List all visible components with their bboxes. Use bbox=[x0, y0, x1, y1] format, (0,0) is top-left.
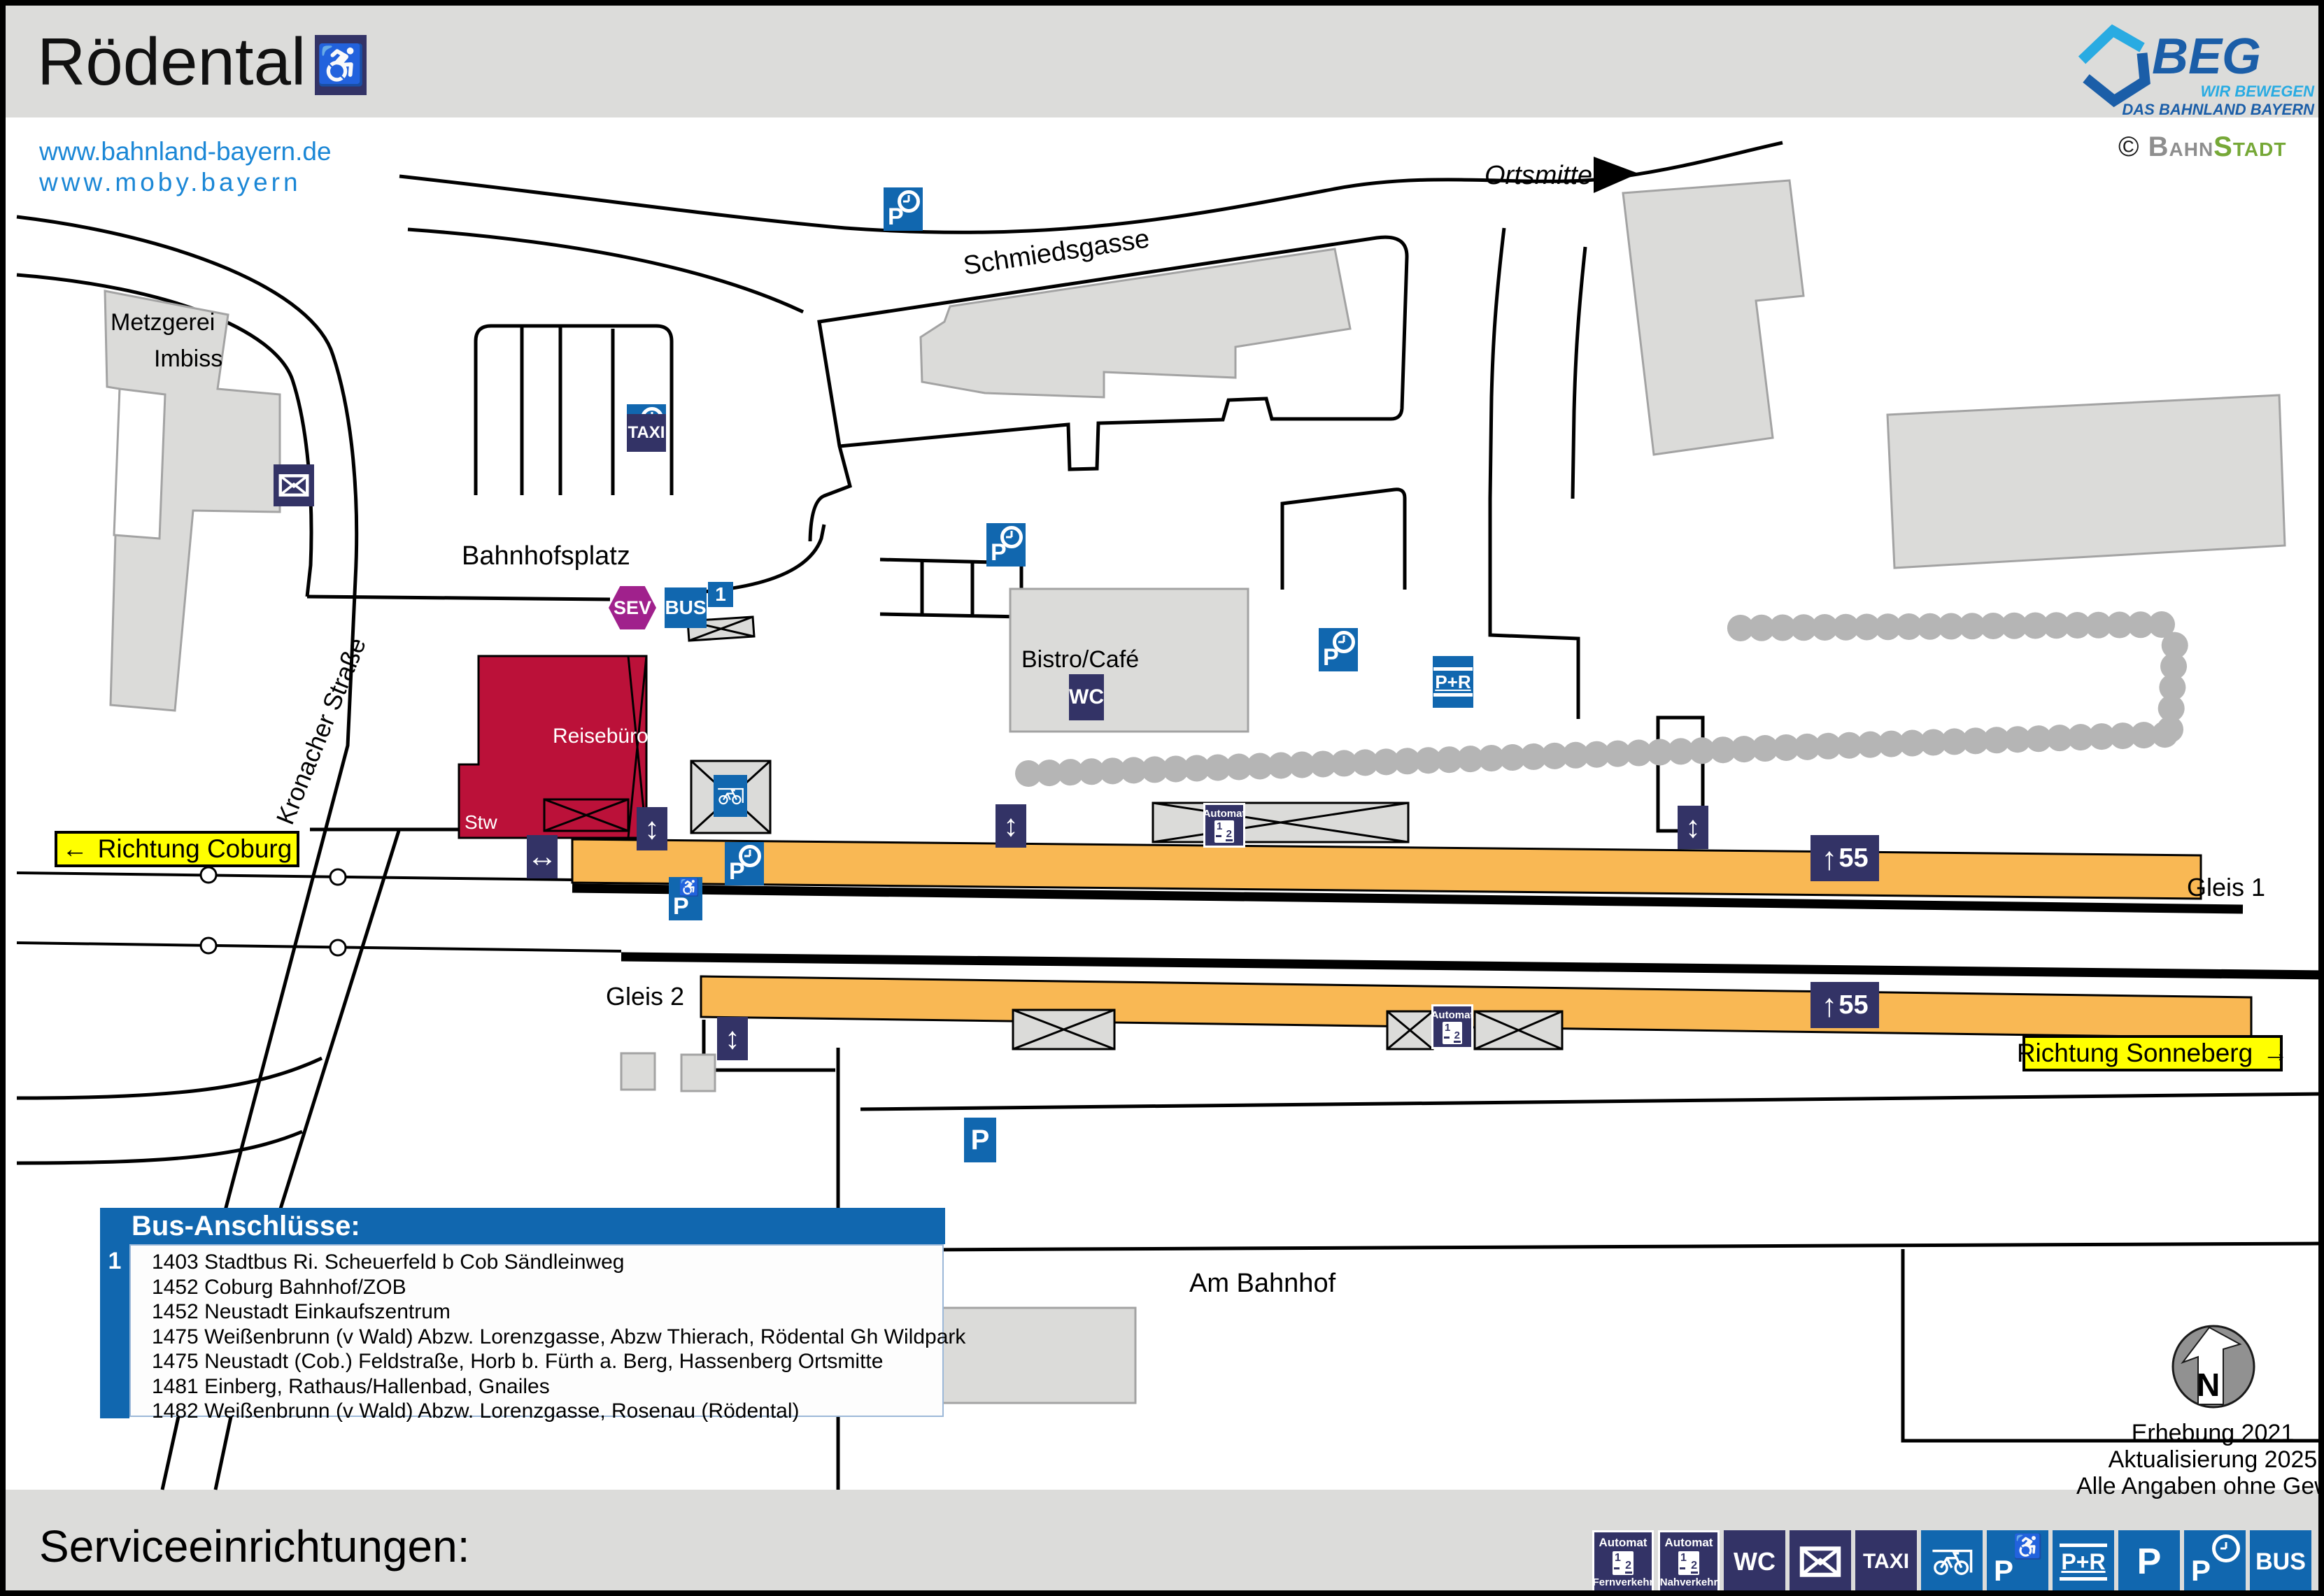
automat-nahverkehr-icon: Automat 1 2 Nahverkehr bbox=[1658, 1530, 1720, 1593]
crossing-access-icon: ↔ bbox=[527, 835, 558, 878]
parking-icon: P bbox=[964, 1118, 996, 1162]
link-moby-bayern[interactable]: www.moby.bayern bbox=[39, 168, 302, 197]
building-northeast bbox=[1623, 180, 1804, 455]
machine-glyph: 1 2 bbox=[1214, 820, 1234, 843]
bus-connections-box: Bus-Anschlüsse: 1 1403 Stadtbus Ri. Sche… bbox=[100, 1208, 945, 1418]
automat-fernverkehr-icon: Automat 1 2 Fernverkehr bbox=[1592, 1530, 1654, 1593]
direction-coburg-sign: ← Richtung Coburg bbox=[55, 831, 299, 867]
road-ortsmitte-east bbox=[1573, 247, 1585, 499]
taxi-legend-icon: TAXI bbox=[1855, 1530, 1917, 1593]
road-schmiedsgasse-south-west bbox=[408, 229, 803, 312]
parking-time-icon: P bbox=[884, 187, 923, 231]
label-gleis1: Gleis 1 bbox=[2187, 873, 2265, 902]
mailbox-legend-icon bbox=[1790, 1530, 1851, 1593]
clock-icon bbox=[1333, 631, 1355, 653]
clock-icon bbox=[2212, 1534, 2240, 1562]
link-bahnland-bayern[interactable]: www.bahnland-bayern.de bbox=[39, 137, 332, 166]
parking-time-icon: P bbox=[725, 842, 764, 885]
label-stw: Stw bbox=[465, 811, 497, 834]
bus-stop-number-icon: 1 bbox=[708, 582, 733, 607]
bus-route: 1452 Coburg Bahnhof/ZOB bbox=[131, 1275, 942, 1300]
road-fork-a bbox=[17, 1058, 322, 1098]
crossing-marker bbox=[201, 867, 216, 883]
wheelchair-accessible-icon: ♿ bbox=[315, 35, 367, 95]
taxi-icon: TAXI bbox=[627, 414, 666, 452]
bus-route: 1475 Weißenbrunn (v Wald) Abzw. Lorenzga… bbox=[131, 1325, 942, 1350]
bus-legend-icon: BUS bbox=[2250, 1530, 2311, 1593]
machine-glyph: 1 2 bbox=[1613, 1551, 1634, 1575]
clock-icon bbox=[898, 190, 920, 213]
road-fork-b bbox=[17, 1132, 302, 1163]
bus-route: 1475 Neustadt (Cob.) Feldstraße, Horb b.… bbox=[131, 1349, 942, 1374]
compass-n: N bbox=[2197, 1367, 2220, 1403]
wc-icon: WC bbox=[1069, 674, 1104, 720]
building-metzgerei-courtyard bbox=[114, 389, 165, 539]
platform-height-marker: ↑ 55 bbox=[1811, 835, 1879, 881]
hedge-south bbox=[1028, 734, 2167, 774]
parcel-east bbox=[1282, 490, 1405, 590]
clock-icon bbox=[1000, 526, 1023, 548]
bus-route: 1403 Stadtbus Ri. Scheuerfeld b Cob Sänd… bbox=[131, 1250, 942, 1275]
label-bistro: Bistro/Café bbox=[1021, 646, 1139, 674]
bahnstadt-credit: © BahnStadt bbox=[2118, 131, 2286, 163]
bus-box-number-column: 1 bbox=[100, 1244, 129, 1418]
label-metzgerei: Metzgerei bbox=[111, 309, 215, 336]
beg-logo: BEG WIR BEWEGEN DAS BAHNLAND BAYERN bbox=[2069, 15, 2321, 120]
survey-note-2: Aktualisierung 2025 bbox=[2076, 1446, 2324, 1474]
label-bahnhofsplatz: Bahnhofsplatz bbox=[462, 541, 630, 571]
track1-thin bbox=[17, 873, 572, 880]
road-am-bahnhof-v2 bbox=[1903, 1249, 2324, 1441]
crossing-marker bbox=[201, 938, 216, 953]
ortsmitte-arrow bbox=[1594, 157, 1638, 193]
machine-glyph: 1 2 bbox=[1678, 1551, 1699, 1575]
hedge-east bbox=[2170, 629, 2176, 729]
machine-glyph: 1 2 bbox=[1443, 1022, 1462, 1044]
forecourt-structures bbox=[880, 560, 1023, 618]
platform-access-icon: ↕ bbox=[717, 1017, 748, 1060]
label-am-bahnhof: Am Bahnhof bbox=[1189, 1269, 1335, 1299]
beg-tagline-1: WIR BEWEGEN bbox=[2200, 83, 2314, 101]
parking-legend-icon: P bbox=[2118, 1530, 2180, 1593]
bus-stop-icon: BUS bbox=[665, 587, 707, 628]
small-square-1 bbox=[621, 1053, 655, 1090]
mailbox-icon bbox=[274, 464, 314, 506]
bus-route: 1481 Einberg, Rathaus/Hallenbad, Gnailes bbox=[131, 1374, 942, 1399]
station-map-page: N Rödental ♿ BEG WIR BEWEGEN DAS BAHNLAN… bbox=[0, 0, 2324, 1596]
small-square-2 bbox=[681, 1055, 715, 1091]
label-gleis2: Gleis 2 bbox=[579, 982, 684, 1011]
platform-height-marker: ↑ 55 bbox=[1811, 982, 1879, 1028]
direction-sonneberg-sign: Richtung Sonneberg → bbox=[2022, 1035, 2283, 1071]
parking-time-legend-icon: P bbox=[2184, 1530, 2246, 1593]
bus-box-header: Bus-Anschlüsse: bbox=[100, 1208, 945, 1244]
park-and-ride-icon: P+R bbox=[1433, 656, 1473, 708]
crossing-marker bbox=[330, 869, 346, 885]
parking-time-icon: P bbox=[1319, 628, 1358, 671]
park-and-ride-legend-icon: P+R bbox=[2053, 1530, 2114, 1593]
label-imbiss: Imbiss bbox=[154, 345, 222, 373]
clock-icon bbox=[739, 845, 761, 867]
survey-note-1: Erhebung 2021 bbox=[2076, 1420, 2324, 1447]
track2-thin bbox=[17, 943, 621, 951]
platform-access-icon: ↕ bbox=[1678, 806, 1708, 849]
bike-parking-legend-icon bbox=[1921, 1530, 1983, 1593]
survey-note-3: Alle Angaben ohne Gewähr! bbox=[2076, 1473, 2324, 1500]
wc-legend-icon: WC bbox=[1724, 1530, 1785, 1593]
building-east bbox=[1887, 395, 2285, 568]
platform-access-icon: ↕ bbox=[637, 807, 667, 850]
bus-route: 1452 Neustadt Einkaufszentrum bbox=[131, 1299, 942, 1325]
footer-title: Serviceeinrichtungen: bbox=[39, 1520, 469, 1572]
label-ortsmitte: Ortsmitte bbox=[1485, 161, 1592, 191]
envelope-icon bbox=[278, 473, 309, 497]
disabled-parking-icon: P ♿ bbox=[669, 877, 702, 920]
road-square-north-a bbox=[307, 597, 610, 599]
ticket-machine-icon: Automat 1 2 bbox=[1431, 1004, 1473, 1049]
crossing-marker bbox=[330, 940, 346, 955]
platform-access-icon: ↕ bbox=[996, 804, 1026, 848]
ticket-machine-icon: Automat 1 2 bbox=[1203, 803, 1245, 848]
bike-parking-icon bbox=[714, 775, 747, 817]
bus-route-list: 1403 Stadtbus Ri. Scheuerfeld b Cob Sänd… bbox=[129, 1244, 944, 1417]
road-ortsmitte-west bbox=[1490, 228, 1578, 719]
hedge-north bbox=[1736, 625, 2162, 628]
bus-route: 1482 Weißenbrunn (v Wald) Abzw. Lorenzga… bbox=[131, 1399, 942, 1424]
road-lower-kerb bbox=[860, 1094, 2324, 1109]
label-reisebuero: Reisebüro bbox=[553, 725, 649, 748]
beg-tagline-2: DAS BAHNLAND BAYERN bbox=[2122, 101, 2314, 119]
track2-main bbox=[621, 957, 2324, 975]
disabled-parking-legend-icon: P ♿ bbox=[1987, 1530, 2048, 1593]
parking-time-icon: P bbox=[986, 523, 1026, 567]
beg-wordmark: BEG bbox=[2152, 28, 2261, 85]
page-title: Rödental bbox=[37, 24, 306, 101]
